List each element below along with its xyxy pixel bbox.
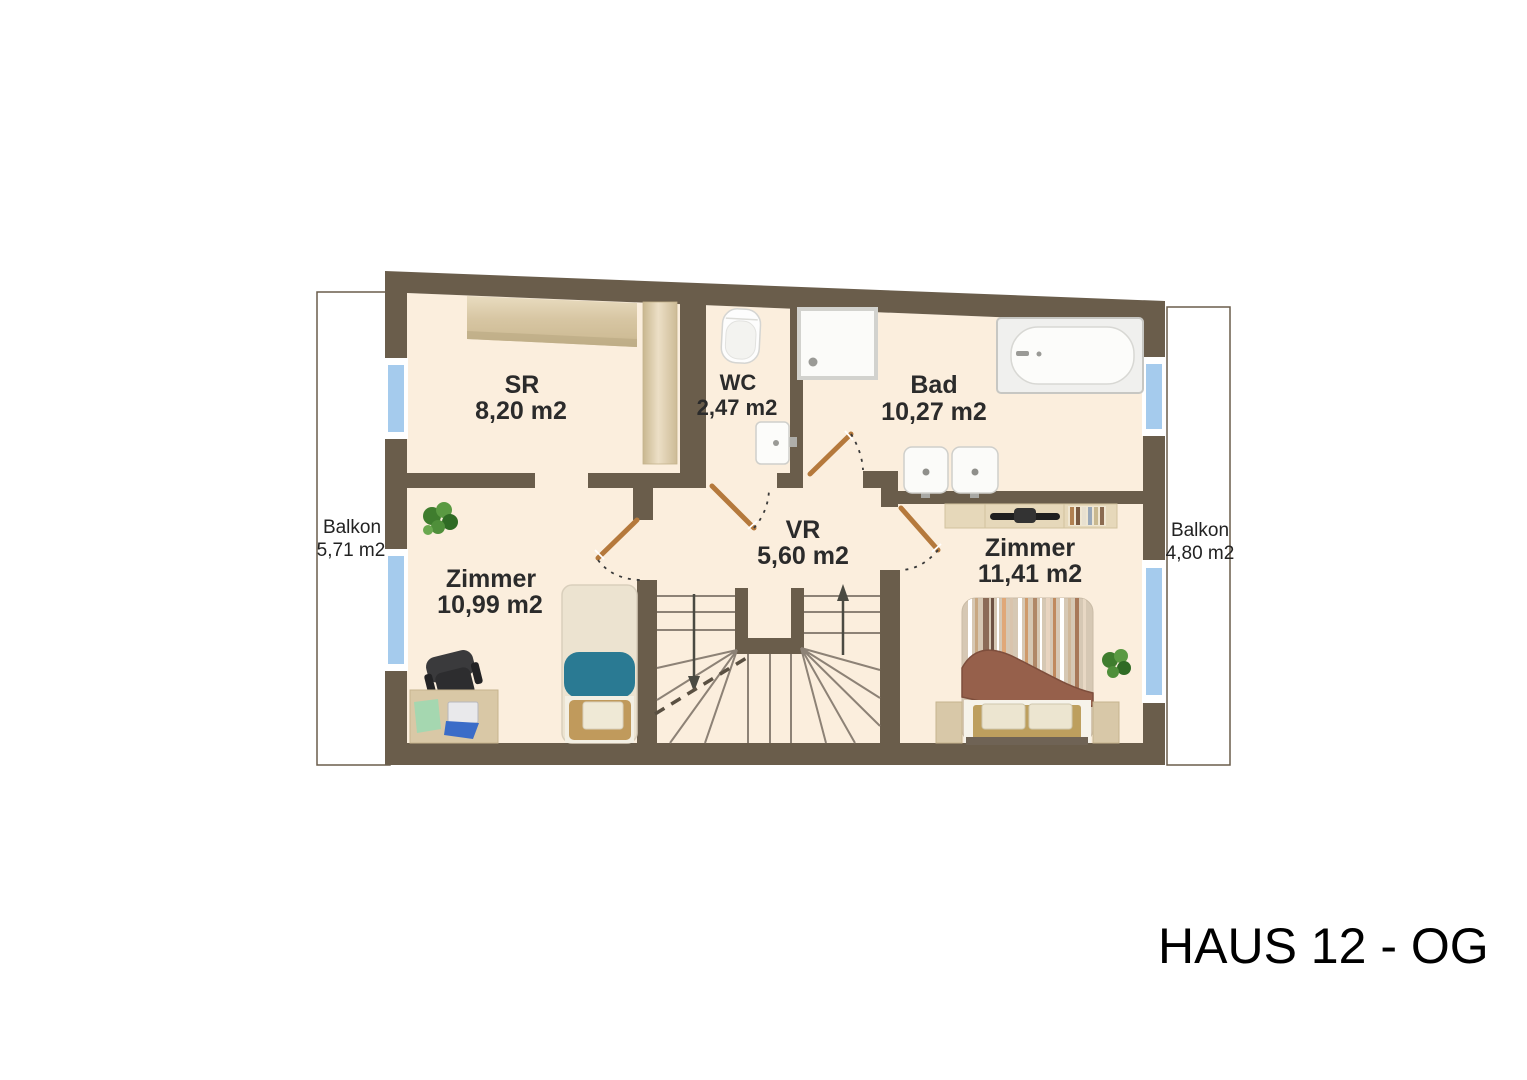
area-vr: 5,60 m2 xyxy=(757,542,849,570)
area-zimmer2: 11,41 m2 xyxy=(978,560,1082,588)
area-balkon-right: 4,80 m2 xyxy=(1166,543,1235,564)
label-balkon-left: Balkon xyxy=(323,517,381,538)
label-sr: SR xyxy=(505,371,540,399)
wardrobe-vertical xyxy=(643,302,677,464)
label-vr: VR xyxy=(786,516,821,544)
desk xyxy=(410,690,498,743)
area-balkon-left: 5,71 m2 xyxy=(317,540,386,561)
sideboard-tv xyxy=(945,504,1117,528)
label-balkon-right: Balkon xyxy=(1171,520,1229,541)
label-bad: Bad xyxy=(910,371,957,399)
stair-newel-base xyxy=(735,638,804,654)
wall-stair-right xyxy=(880,570,900,743)
floor-plan-canvas: SR 8,20 m2 WC 2,47 m2 Bad 10,27 m2 VR 5,… xyxy=(0,0,1527,1080)
window-bad xyxy=(1142,357,1165,436)
window-sr xyxy=(385,358,408,439)
area-bad: 10,27 m2 xyxy=(881,398,987,426)
shower xyxy=(799,309,876,378)
paper-green xyxy=(414,699,441,733)
wall-stub-zimmer1-door xyxy=(633,487,653,520)
double-bed xyxy=(962,598,1093,745)
wall-stub-wc-door xyxy=(777,473,803,488)
label-zimmer2: Zimmer xyxy=(985,534,1076,562)
label-wc: WC xyxy=(720,370,757,395)
area-zimmer1: 10,99 m2 xyxy=(437,591,543,619)
window-zimmer1 xyxy=(385,549,408,671)
area-sr: 8,20 m2 xyxy=(475,397,567,425)
pillow-left xyxy=(982,704,1025,729)
window-zimmer2 xyxy=(1142,560,1165,703)
laptop-screen xyxy=(448,702,478,723)
pillow-right xyxy=(1029,704,1072,729)
wall-stair-left xyxy=(637,580,657,743)
single-bed xyxy=(562,585,637,743)
label-zimmer1: Zimmer xyxy=(446,565,537,593)
wall-bad-corner xyxy=(863,471,898,488)
bad-sink-right xyxy=(952,447,998,498)
books xyxy=(1068,506,1106,526)
wall-sr-zimmer1 xyxy=(407,473,535,488)
area-wc: 2,47 m2 xyxy=(697,395,778,420)
floor-plan-page: SR 8,20 m2 WC 2,47 m2 Bad 10,27 m2 VR 5,… xyxy=(0,0,1527,1080)
page-title: HAUS 12 - OG xyxy=(1158,918,1489,974)
bed-base xyxy=(966,737,1088,745)
bad-sink-left xyxy=(904,447,948,498)
wall-sr-wc xyxy=(680,300,706,488)
nightstand-right xyxy=(1093,702,1119,743)
nightstand-left xyxy=(936,702,962,743)
bathtub xyxy=(997,318,1143,393)
toilet xyxy=(721,308,762,364)
